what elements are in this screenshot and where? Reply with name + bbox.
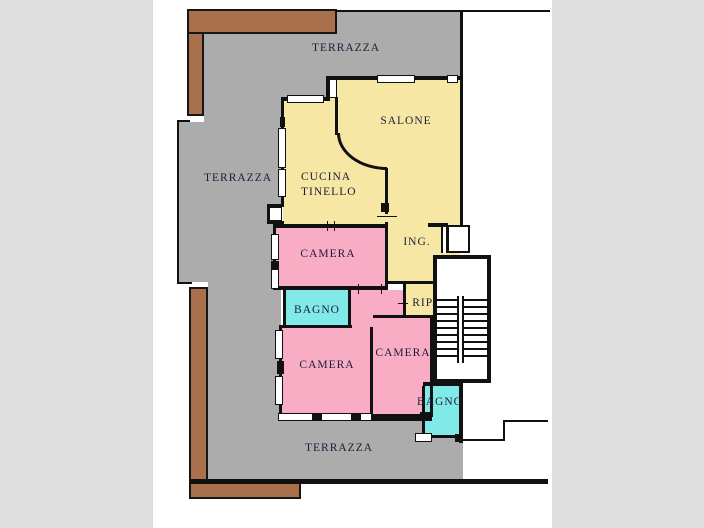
wall <box>273 286 387 290</box>
stairwell-wall-right <box>487 255 491 383</box>
wall <box>279 325 352 328</box>
wall-node <box>420 412 430 420</box>
window-opening <box>269 207 282 221</box>
door-tick <box>334 221 335 231</box>
terrace-outline-jog-bottom <box>177 282 192 284</box>
wall-node <box>271 261 279 269</box>
wall <box>385 222 388 290</box>
entrance-door-swing <box>447 225 470 253</box>
terrace-outline-left <box>177 120 179 284</box>
wall <box>335 97 338 135</box>
room-camera-left-fill <box>282 327 370 415</box>
building-outline-bottom <box>190 479 548 484</box>
door-tick <box>358 284 359 294</box>
building-outline-top <box>336 10 550 12</box>
stairs-divider <box>457 296 464 363</box>
window-opening <box>275 376 283 405</box>
landing-step-line-2 <box>503 420 505 441</box>
wall <box>422 386 425 435</box>
window-opening <box>329 79 337 98</box>
entrance-door-leaf <box>441 227 448 253</box>
wall <box>387 281 436 284</box>
terrace-left-mid <box>179 122 281 282</box>
wall <box>370 327 373 417</box>
wall <box>283 286 286 327</box>
door-tick <box>327 221 328 231</box>
label-terrazza-left: TERRAZZA <box>204 172 272 184</box>
label-camera-left: CAMERA <box>299 359 354 371</box>
label-cucina-tinello: CUCINA TINELLO <box>301 170 357 200</box>
room-salone-fill <box>330 80 460 100</box>
window-opening <box>275 330 283 359</box>
balcony-strip-top <box>187 9 337 34</box>
wall <box>423 382 463 386</box>
label-terrazza-bottom: TERRAZZA <box>305 442 373 454</box>
label-camera-top: CAMERA <box>300 248 355 260</box>
floor-plan: TERRAZZA TERRAZZA TERRAZZA SALONE CUCINA… <box>0 0 704 528</box>
label-ingresso: ING. <box>403 236 430 248</box>
window-opening <box>278 128 286 168</box>
terrace-outline-jog-top <box>177 120 190 122</box>
wall-node <box>277 361 284 374</box>
window-opening <box>278 169 286 197</box>
terrace-left-upper <box>204 99 281 122</box>
window-opening <box>415 433 432 442</box>
window-opening <box>271 269 279 289</box>
wall-node <box>280 117 285 127</box>
window-opening <box>271 234 279 260</box>
label-terrazza-top: TERRAZZA <box>312 42 380 54</box>
wall <box>403 284 406 317</box>
landing-step-line-3 <box>461 439 505 441</box>
wall <box>373 315 433 318</box>
window-opening <box>377 75 415 83</box>
label-cucina-line1: CUCINA <box>301 170 357 185</box>
landing-step-line-1 <box>503 420 548 422</box>
wall-node <box>455 434 462 442</box>
wall-node <box>381 203 389 212</box>
wall <box>348 288 351 328</box>
stairwell-wall-top <box>433 255 491 259</box>
window-opening <box>447 75 458 83</box>
door-threshold-line <box>377 216 397 217</box>
window-opening <box>287 95 324 103</box>
wall <box>273 224 387 228</box>
door-tick <box>381 284 382 294</box>
label-ripostiglio: RIP. <box>412 297 436 309</box>
label-cucina-line2: TINELLO <box>301 185 357 200</box>
balcony-strip-bottom-left <box>189 287 208 483</box>
label-bagno-left: BAGNO <box>294 304 340 316</box>
label-salone: SALONE <box>380 115 431 127</box>
label-bagno-right: BAGNO <box>417 396 463 408</box>
wall-node <box>312 413 322 421</box>
door-tick <box>398 303 408 304</box>
balcony-strip-top-left <box>187 32 204 116</box>
wall <box>460 10 463 227</box>
wall-node <box>351 413 361 421</box>
label-camera-right: CAMERA <box>375 347 430 359</box>
